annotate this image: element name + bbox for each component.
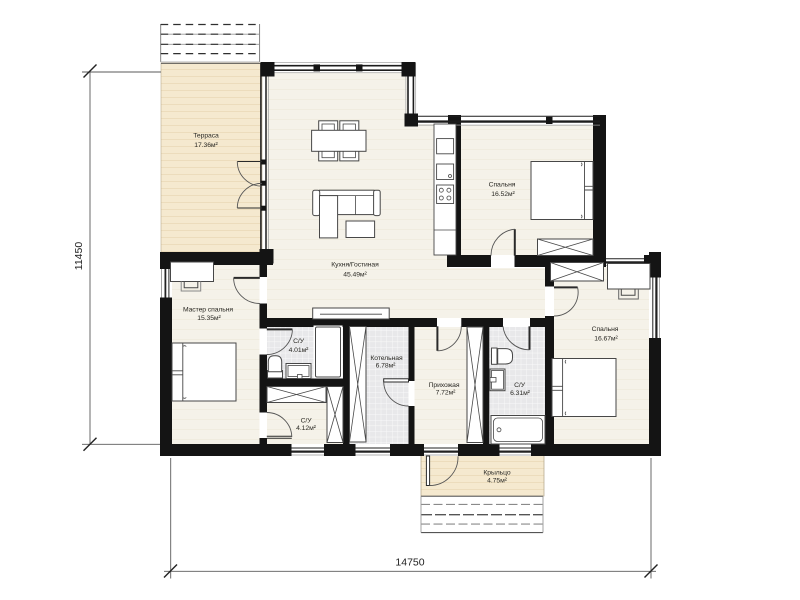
svg-text:Мастер спальня: Мастер спальня — [183, 307, 233, 314]
svg-text:С/У: С/У — [301, 418, 313, 425]
svg-text:45.49м²: 45.49м² — [343, 272, 367, 279]
svg-text:4.12м²: 4.12м² — [296, 425, 317, 432]
svg-text:7.72м²: 7.72м² — [436, 390, 457, 397]
svg-text:11450: 11450 — [73, 242, 85, 271]
svg-text:Прихожая: Прихожая — [429, 382, 460, 389]
svg-text:14750: 14750 — [395, 557, 424, 569]
svg-text:Котельная: Котельная — [370, 355, 403, 362]
svg-text:С/У: С/У — [514, 382, 526, 389]
svg-text:Спальня: Спальня — [489, 182, 516, 189]
svg-text:Спальня: Спальня — [592, 326, 619, 333]
svg-text:17.36м²: 17.36м² — [194, 142, 218, 149]
svg-text:16.52м²: 16.52м² — [491, 191, 515, 198]
svg-text:6.31м²: 6.31м² — [510, 390, 531, 397]
svg-text:4.75м²: 4.75м² — [487, 478, 508, 485]
svg-text:Терраса: Терраса — [193, 133, 219, 140]
svg-text:Крыльцо: Крыльцо — [483, 470, 510, 477]
svg-text:С/У: С/У — [293, 338, 305, 345]
svg-text:16.67м²: 16.67м² — [594, 336, 618, 343]
svg-text:6.78м²: 6.78м² — [376, 363, 397, 370]
svg-text:15.35м²: 15.35м² — [197, 315, 221, 322]
svg-text:Кухня/Гостиная: Кухня/Гостиная — [331, 262, 379, 269]
svg-text:4.01м²: 4.01м² — [289, 347, 310, 354]
